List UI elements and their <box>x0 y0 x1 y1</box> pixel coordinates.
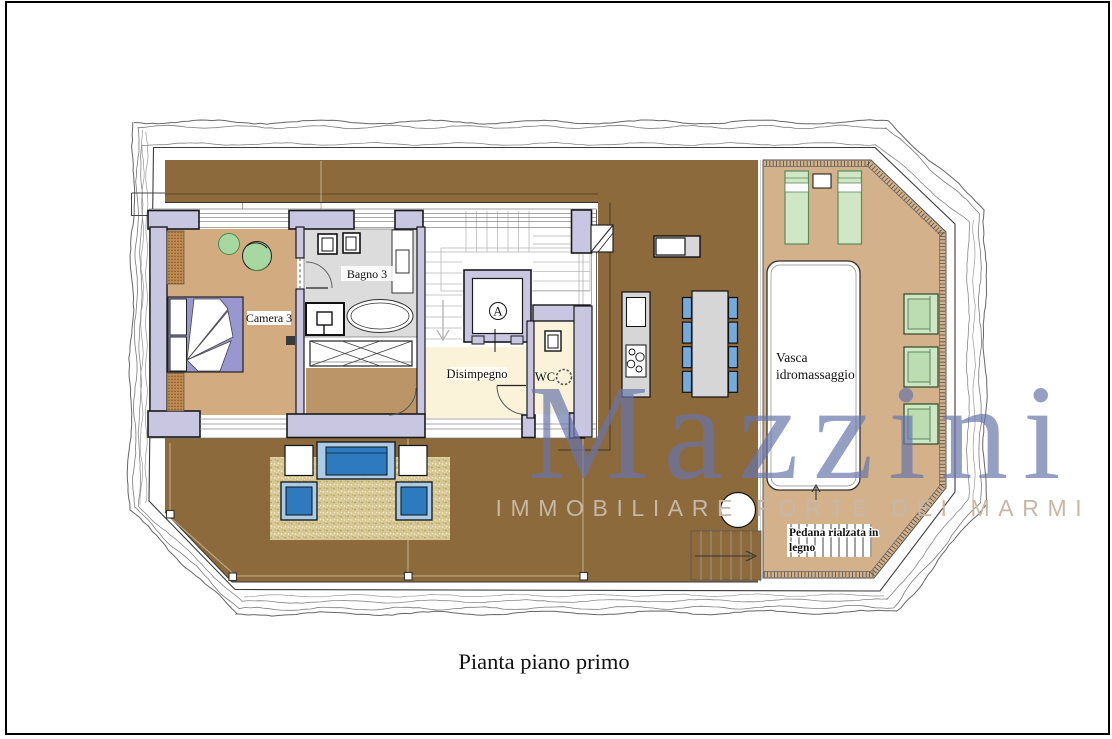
svg-text:Bagno 3: Bagno 3 <box>347 267 387 281</box>
svg-text:Pianta piano primo: Pianta piano primo <box>458 649 629 674</box>
svg-text:A: A <box>493 304 503 319</box>
svg-text:legno: legno <box>789 542 815 554</box>
svg-text:Pedana rialzata in: Pedana rialzata in <box>789 527 879 539</box>
svg-text:IMMOBILIARE FORTE DEI MARMI: IMMOBILIARE FORTE DEI MARMI <box>496 495 1091 521</box>
svg-text:Mazzini: Mazzini <box>528 358 1075 508</box>
svg-text:Disimpegno: Disimpegno <box>446 367 507 381</box>
svg-text:Camera 3: Camera 3 <box>246 311 292 325</box>
